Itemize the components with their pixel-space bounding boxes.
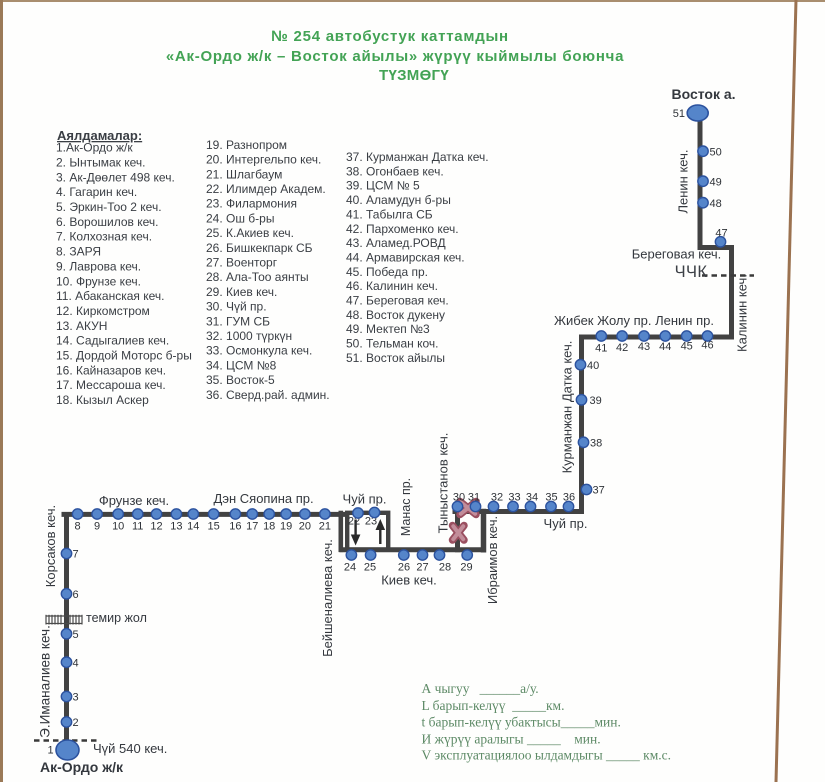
svg-text:46: 46 (701, 340, 713, 352)
svg-text:21: 21 (319, 521, 331, 533)
svg-text:Э.Иманалиев кеч.: Э.Иманалиев кеч. (38, 625, 53, 738)
svg-text:20: 20 (299, 521, 311, 533)
svg-text:3: 3 (73, 692, 79, 704)
svg-text:28: 28 (439, 562, 451, 574)
svg-text:Тыныстанов кеч.: Тыныстанов кеч. (436, 433, 451, 534)
svg-text:16: 16 (229, 521, 241, 533)
svg-text:Восток а.: Восток а. (671, 86, 735, 102)
svg-text:35: 35 (545, 492, 557, 504)
svg-text:50: 50 (710, 146, 722, 158)
svg-text:44: 44 (659, 341, 671, 353)
svg-text:t барып-келүү убактысы_____мин: t барып-келүү убактысы_____мин. (422, 715, 621, 730)
svg-text:39: 39 (590, 395, 602, 407)
svg-text:7: 7 (73, 549, 79, 561)
svg-text:Жибек Жолу пр. Ленин пр.: Жибек Жолу пр. Ленин пр. (554, 313, 714, 328)
svg-text:темир жол: темир жол (86, 611, 147, 625)
svg-text:37: 37 (593, 485, 605, 497)
svg-text:41: 41 (595, 343, 607, 355)
svg-text:18: 18 (263, 521, 275, 533)
svg-text:Бейшеналиева кеч.: Бейшеналиева кеч. (320, 539, 335, 657)
svg-text:14: 14 (187, 521, 199, 533)
svg-text:17: 17 (246, 521, 258, 533)
svg-text:42: 42 (616, 342, 628, 354)
svg-text:Ибраимов кеч.: Ибраимов кеч. (485, 516, 500, 604)
svg-text:№ 254 автобустук каттамдын: № 254 автобустук каттамдын (271, 28, 509, 45)
svg-text:40: 40 (587, 360, 599, 372)
svg-text:9: 9 (94, 521, 100, 533)
svg-text:15: 15 (207, 521, 219, 533)
svg-text:33: 33 (508, 492, 520, 504)
svg-text:24: 24 (344, 562, 356, 574)
svg-text:Манас пр.: Манас пр. (399, 478, 413, 536)
svg-text:ТҮЗМӨГҮ: ТҮЗМӨГҮ (379, 67, 449, 84)
svg-text:Ленин кеч.: Ленин кеч. (676, 149, 691, 213)
svg-text:8: 8 (75, 521, 81, 533)
svg-text:19: 19 (280, 521, 292, 533)
svg-text:И жүрүү аралыгы _____ мин.: И жүрүү аралыгы _____ мин. (422, 732, 601, 747)
svg-text:1: 1 (47, 745, 53, 757)
svg-text:«Ак-Ордо ж/к – Восток айылы» ж: «Ак-Ордо ж/к – Восток айылы» жүрүү кыймы… (166, 48, 624, 65)
svg-text:36: 36 (563, 492, 575, 504)
svg-text:2: 2 (73, 717, 79, 729)
svg-text:Фрунзе кеч.: Фрунзе кеч. (99, 493, 169, 508)
svg-text:12: 12 (150, 521, 162, 533)
svg-text:6: 6 (73, 589, 79, 601)
svg-text:45: 45 (681, 341, 693, 353)
svg-text:Курманжан Датка кеч.: Курманжан Датка кеч. (560, 341, 575, 474)
svg-text:А чыгуу ______а/у.: А чыгуу ______а/у. (422, 681, 539, 696)
svg-text:11: 11 (132, 521, 143, 533)
svg-text:34: 34 (526, 492, 538, 504)
svg-text:Киев кеч.: Киев кеч. (381, 573, 437, 588)
svg-text:Чуй пр.: Чуй пр. (343, 492, 387, 507)
svg-text:49: 49 (710, 176, 722, 188)
svg-text:25: 25 (364, 562, 376, 574)
svg-text:Ак-Ордо ж/к: Ак-Ордо ж/к (40, 759, 124, 775)
svg-text:5: 5 (73, 629, 79, 641)
svg-text:Чуй пр.: Чуй пр. (544, 516, 588, 531)
svg-text:ЧЧК: ЧЧК (675, 263, 708, 281)
svg-text:Чүй 540 кеч.: Чүй 540 кеч. (93, 741, 167, 756)
svg-text:43: 43 (638, 341, 650, 353)
svg-text:4: 4 (73, 657, 79, 669)
svg-text:29: 29 (460, 562, 472, 574)
svg-text:13: 13 (170, 521, 182, 533)
svg-text:V эксплуатациялоо ылдамдыгы __: V эксплуатациялоо ылдамдыгы _____ км.с. (422, 748, 672, 763)
svg-text:47: 47 (715, 228, 727, 240)
svg-text:L барып-келүү _____км.: L барып-келүү _____км. (422, 698, 565, 713)
svg-text:32: 32 (491, 492, 503, 504)
svg-text:48: 48 (710, 198, 722, 210)
svg-text:Калинин кеч.: Калинин кеч. (735, 274, 750, 352)
svg-text:38: 38 (590, 438, 602, 450)
svg-text:Береговая кеч.: Береговая кеч. (632, 247, 722, 262)
svg-text:Корсаков кеч.: Корсаков кеч. (43, 505, 58, 587)
svg-text:10: 10 (112, 521, 124, 533)
svg-text:Дэн Сяопина пр.: Дэн Сяопина пр. (214, 491, 314, 506)
svg-text:51: 51 (673, 108, 685, 120)
